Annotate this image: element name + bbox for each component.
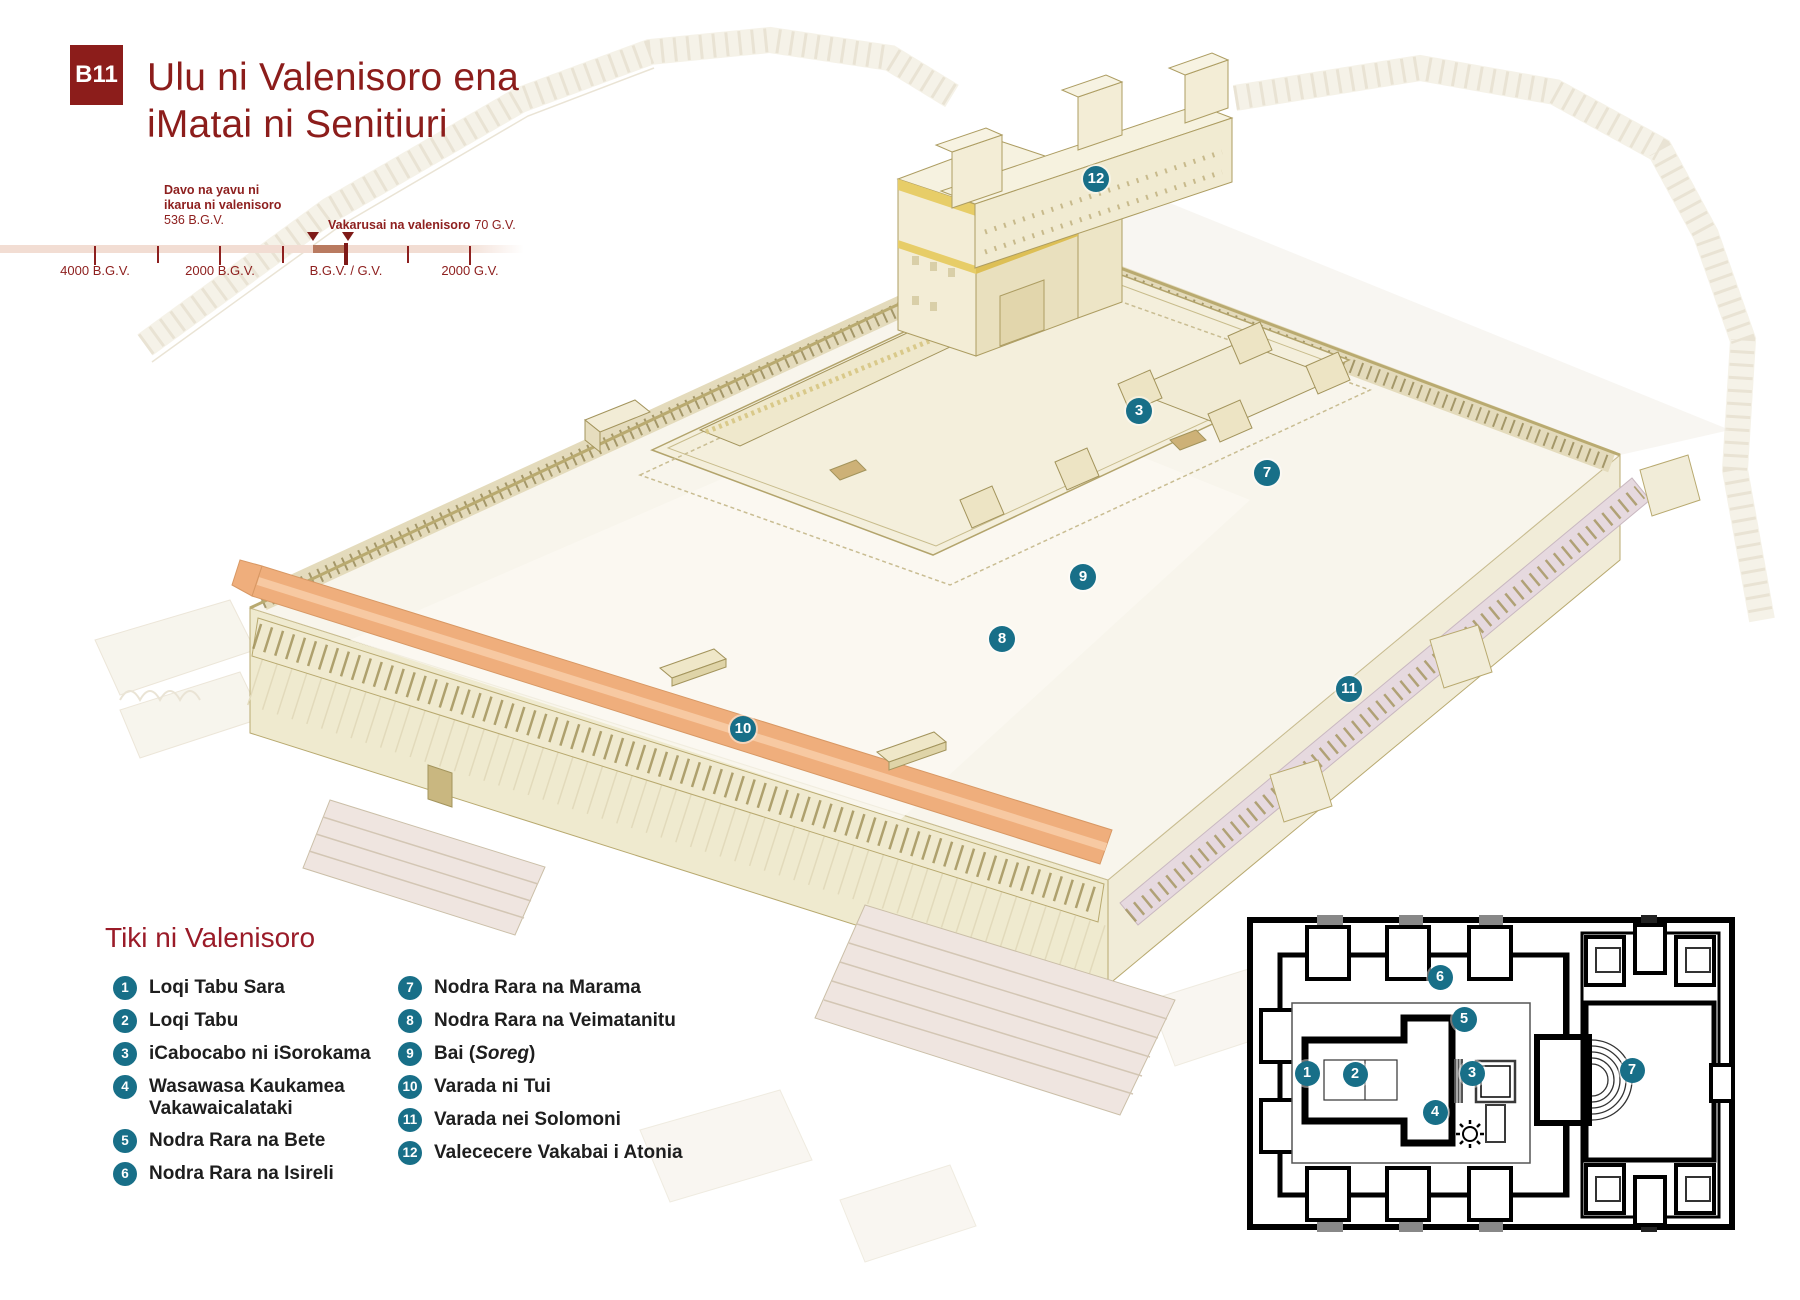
timeline-marker-triangle-70: [342, 232, 354, 241]
floorplan-inset: 1234567: [1247, 915, 1738, 1232]
page-canvas: B11 Ulu ni Valenisoro ena iMatai ni Seni…: [0, 0, 1800, 1300]
timeline-event1-date: 536 B.G.V.: [164, 213, 281, 228]
legend-item-number: 2: [113, 1009, 137, 1033]
legend-item-number: 7: [398, 976, 422, 1000]
floorplan-drawing: [1247, 915, 1738, 1232]
timeline-tick: [407, 246, 409, 263]
legend-item: 10Varada ni Tui: [398, 1075, 698, 1099]
legend-item: 6Nodra Rara na Isireli: [113, 1162, 375, 1186]
legend-item-label: iCabocabo ni iSorokama: [149, 1042, 371, 1065]
legend-item-label: Varada ni Tui: [434, 1075, 551, 1098]
timeline-event-temple-foundation: Davo na yavu ni ikarua ni valenisoro 536…: [164, 183, 281, 228]
legend-item: 7Nodra Rara na Marama: [398, 976, 698, 1000]
legend-item-number: 5: [113, 1129, 137, 1153]
legend-item: 5Nodra Rara na Bete: [113, 1129, 375, 1153]
legend-item: 4Wasawasa Kaukamea Vakawaicalataki: [113, 1075, 375, 1120]
legend-item: 11Varada nei Solomoni: [398, 1108, 698, 1132]
legend-item-number: 9: [398, 1042, 422, 1066]
legend-item-number: 1: [113, 976, 137, 1000]
legend-item-number: 3: [113, 1042, 137, 1066]
timeline-bar: [0, 245, 524, 253]
legend-column-1: 1Loqi Tabu Sara2Loqi Tabu3iCabocabo ni i…: [113, 976, 375, 1186]
legend-item-label: Wasawasa Kaukamea Vakawaicalataki: [149, 1075, 375, 1120]
legend-item-label: Bai (Soreg): [434, 1042, 535, 1065]
legend-item-label: Varada nei Solomoni: [434, 1108, 621, 1131]
timeline-highlight-range: [313, 245, 347, 253]
legend-item-number: 8: [398, 1009, 422, 1033]
timeline-era-divider: [344, 243, 348, 265]
timeline-tick: [282, 246, 284, 263]
legend-item-label: Nodra Rara na Veimatanitu: [434, 1009, 676, 1032]
timeline-event1-line2: ikarua ni valenisoro: [164, 198, 281, 213]
legend-title: Tiki ni Valenisoro: [105, 922, 315, 954]
legend-item-label: Nodra Rara na Marama: [434, 976, 641, 999]
legend-item-number: 6: [113, 1162, 137, 1186]
timeline-tick: [157, 246, 159, 263]
timeline-tick-label: 2000 B.G.V.: [185, 263, 255, 278]
legend-item-number: 4: [113, 1075, 137, 1099]
timeline-event2-label: Vakarusai na valenisoro: [328, 218, 470, 232]
map-reference-badge: B11: [70, 45, 123, 105]
page-title-line2: iMatai ni Senitiuri: [147, 101, 519, 148]
legend-item: 9Bai (Soreg): [398, 1042, 698, 1066]
page-title: Ulu ni Valenisoro ena iMatai ni Senitiur…: [147, 54, 519, 148]
legend-item: 8Nodra Rara na Veimatanitu: [398, 1009, 698, 1033]
legend-item-label: Loqi Tabu: [149, 1009, 238, 1032]
timeline-marker-triangle-536: [307, 232, 319, 241]
legend-item-label: Valececere Vakabai i Atonia: [434, 1141, 683, 1164]
legend-item-label: Nodra Rara na Isireli: [149, 1162, 334, 1185]
timeline-tick-label: 4000 B.G.V.: [60, 263, 130, 278]
legend-item-label: Loqi Tabu Sara: [149, 976, 285, 999]
legend-item: 12Valececere Vakabai i Atonia: [398, 1141, 698, 1165]
legend-item-label: Nodra Rara na Bete: [149, 1129, 325, 1152]
timeline-tick-label: 2000 G.V.: [441, 263, 498, 278]
legend-item: 2Loqi Tabu: [113, 1009, 375, 1033]
legend-item-number: 12: [398, 1141, 422, 1165]
timeline-tick-label: B.G.V. / G.V.: [310, 263, 383, 278]
legend-item-number: 10: [398, 1075, 422, 1099]
timeline-event1-line1: Davo na yavu ni: [164, 183, 281, 198]
legend-column-2: 7Nodra Rara na Marama8Nodra Rara na Veim…: [398, 976, 698, 1165]
timeline-event2-date: 70 G.V.: [474, 218, 515, 232]
legend-item: 3iCabocabo ni iSorokama: [113, 1042, 375, 1066]
legend-item-number: 11: [398, 1108, 422, 1132]
legend-item: 1Loqi Tabu Sara: [113, 976, 375, 1000]
timeline-event-temple-destruction: Vakarusai na valenisoro70 G.V.: [328, 218, 516, 232]
page-title-line1: Ulu ni Valenisoro ena: [147, 54, 519, 101]
